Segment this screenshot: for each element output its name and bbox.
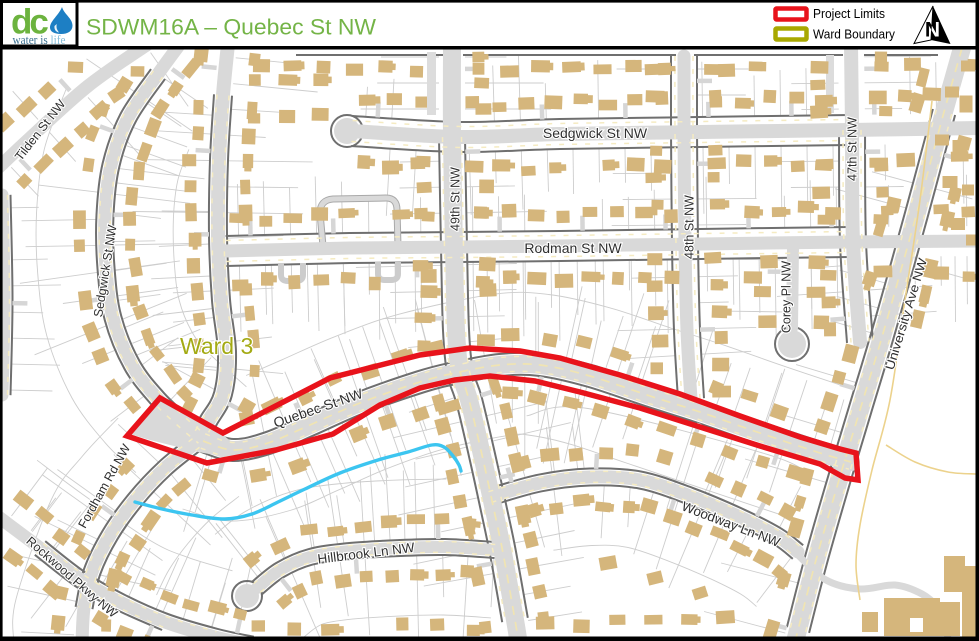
svg-text:49th St NW: 49th St NW — [448, 167, 462, 231]
svg-text:47th St NW: 47th St NW — [845, 117, 859, 181]
svg-text:Project Limits: Project Limits — [813, 7, 885, 21]
svg-text:Corey Pl NW: Corey Pl NW — [779, 261, 793, 333]
svg-text:SDWM16A – Quebec St NW: SDWM16A – Quebec St NW — [86, 14, 377, 39]
svg-text:water is life: water is life — [13, 33, 66, 47]
svg-text:Ward 3: Ward 3 — [180, 333, 253, 359]
svg-text:48th St NW: 48th St NW — [682, 195, 696, 259]
svg-text:Ward Boundary: Ward Boundary — [813, 28, 896, 42]
svg-text:Sedgwick St NW: Sedgwick St NW — [543, 125, 648, 141]
svg-text:Rodman St NW: Rodman St NW — [524, 240, 622, 256]
